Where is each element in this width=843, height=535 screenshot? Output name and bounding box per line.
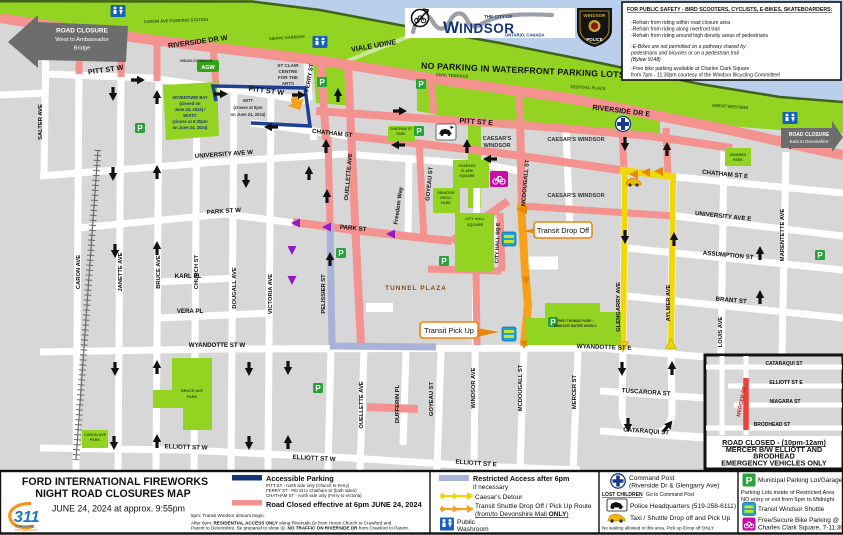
- svg-text:PELISSIER ST: PELISSIER ST: [321, 274, 327, 314]
- svg-text:NIGHT ROAD CLOSURES MAP: NIGHT ROAD CLOSURES MAP: [35, 488, 190, 500]
- svg-text:-Free bike parking available a: -Free bike parking available at Charles …: [631, 66, 750, 72]
- svg-text:PARK: PARK: [187, 395, 198, 399]
- svg-text:Accessible Parking: Accessible Parking: [266, 474, 334, 483]
- svg-text:Transit Windsor Shuttle: Transit Windsor Shuttle: [758, 506, 825, 513]
- svg-text:PARK: PARK: [733, 158, 743, 162]
- svg-text:GLENGARRY AVE: GLENGARRY AVE: [616, 282, 622, 332]
- svg-text:on June 24, 2024): on June 24, 2024): [173, 125, 209, 130]
- svg-text:Taxi / Shuttle Drop off and Pi: Taxi / Shuttle Drop off and Pick Up: [630, 515, 731, 522]
- svg-text:from 7pm - 11:30pm courtesy of: from 7pm - 11:30pm courtesy of the Winds…: [631, 73, 780, 79]
- svg-text:P: P: [137, 124, 143, 133]
- svg-text:-Refrain from riding within ro: -Refrain from riding within road closure…: [631, 20, 730, 26]
- svg-text:WINDSOR: WINDSOR: [583, 13, 606, 18]
- svg-text:CHATHAM ST - north side only (: CHATHAM ST - north side only (Ferry to V…: [266, 493, 362, 498]
- svg-text:KARL PL: KARL PL: [175, 273, 202, 280]
- svg-text:NIAGARA ST: NIAGARA ST: [770, 399, 801, 405]
- svg-text:Public: Public: [457, 519, 476, 526]
- svg-text:-Refrain from riding around hi: -Refrain from riding around high density…: [631, 33, 768, 39]
- svg-text:PARK: PARK: [90, 438, 101, 442]
- svg-text:THE CITY OF: THE CITY OF: [484, 14, 513, 19]
- svg-text:CHATHAM ST: CHATHAM ST: [390, 127, 413, 131]
- svg-text:P: P: [416, 127, 422, 136]
- svg-text:West to Ambassador: West to Ambassador: [55, 37, 108, 43]
- svg-text:Transit Drop Off: Transit Drop Off: [537, 226, 590, 235]
- svg-text:MCDOUGALL ST: MCDOUGALL ST: [518, 364, 524, 411]
- svg-text:JANETTE AVE: JANETTE AVE: [118, 252, 124, 291]
- svg-text:Municipal Parking Lot/Garage: Municipal Parking Lot/Garage: [758, 477, 843, 484]
- svg-text:DUFFERIN PL: DUFFERIN PL: [395, 384, 401, 423]
- svg-text:(closes at 5pm: (closes at 5pm: [233, 105, 262, 110]
- svg-text:CHURCH ST: CHURCH ST: [194, 254, 200, 289]
- svg-text:Road Closed effective at 6pm J: Road Closed effective at 6pm JUNE 24, 20…: [266, 500, 423, 509]
- svg-text:-Refrain from riding along riv: -Refrain from riding along riverfront tr…: [631, 27, 720, 33]
- svg-text:CHARLES: CHARLES: [458, 164, 476, 168]
- svg-text:SALTER AVE: SALTER AVE: [38, 104, 44, 140]
- svg-text:JUNE 24, 2024 at approx. 9:55p: JUNE 24, 2024 at approx. 9:55pm: [52, 504, 185, 514]
- svg-text:311: 311: [14, 509, 40, 526]
- svg-text:(from/to Devonshire Mall ONLY): (from/to Devonshire Mall ONLY): [475, 511, 569, 518]
- svg-text:East to Devonshire: East to Devonshire: [790, 139, 829, 144]
- svg-text:CITY SERVICES: CITY SERVICES: [15, 528, 37, 532]
- svg-text:FORD INTERNATIONAL FIREWORKS: FORD INTERNATIONAL FIREWORKS: [22, 476, 208, 488]
- svg-text:P: P: [338, 249, 344, 258]
- svg-text:CAESAR'S WINDSOR: CAESAR'S WINDSOR: [547, 137, 604, 143]
- svg-text:WINDSOR AVE: WINDSOR AVE: [471, 367, 477, 408]
- svg-text:(closes at 6:30pm: (closes at 6:30pm: [172, 119, 207, 124]
- svg-text:P: P: [319, 78, 325, 87]
- svg-text:Parking Lots inside of Restric: Parking Lots inside of Restricted Area: [741, 490, 835, 496]
- svg-text:EMERGENCY VEHICLES ONLY: EMERGENCY VEHICLES ONLY: [721, 459, 827, 468]
- svg-text:LOST CHILDREN: LOST CHILDREN: [602, 492, 643, 498]
- svg-text:CATARAQUI ST: CATARAQUI ST: [765, 361, 802, 367]
- svg-text:Police Headquarters (519-258-6: Police Headquarters (519-258-6111): [630, 503, 736, 510]
- svg-text:ROAD CLOSURE: ROAD CLOSURE: [789, 132, 830, 138]
- svg-text:ONTARIO, CANADA: ONTARIO, CANADA: [505, 33, 544, 38]
- svg-text:Go to Command Post: Go to Command Post: [646, 492, 695, 498]
- svg-text:Washroom: Washroom: [457, 526, 489, 533]
- svg-text:WITT: WITT: [243, 98, 254, 103]
- svg-text:5pm: Transit Windsor detours b: 5pm: Transit Windsor detours begin.: [191, 513, 265, 518]
- svg-text:ROAD CLOSURE: ROAD CLOSURE: [56, 28, 109, 35]
- svg-text:CROLL: CROLL: [440, 196, 453, 200]
- svg-text:CITY HALL: CITY HALL: [465, 217, 485, 221]
- svg-text:BRODHEAD ST: BRODHEAD ST: [754, 422, 791, 428]
- svg-text:ELLIOTT ST E: ELLIOTT ST E: [769, 380, 803, 386]
- svg-text:NO entry or exit from 6pm to M: NO entry or exit from 6pm to Midnight: [741, 497, 835, 503]
- svg-text:Transit Pick Up: Transit Pick Up: [424, 326, 474, 335]
- svg-text:DOUGALL AVE: DOUGALL AVE: [232, 267, 238, 309]
- svg-text:CENTRE: CENTRE: [279, 69, 298, 74]
- svg-text:Charles Clark Square, 7-11:30p: Charles Clark Square, 7-11:30pm: [758, 525, 843, 532]
- svg-text:AYLMER AVE: AYLMER AVE: [666, 284, 672, 321]
- svg-text:Restricted Access after 6pm: Restricted Access after 6pm: [473, 474, 569, 483]
- svg-text:ADVENTURE BAY: ADVENTURE BAY: [172, 95, 208, 100]
- svg-text:BRUCE AVE: BRUCE AVE: [156, 255, 162, 289]
- svg-text:WINDSOR: WINDSOR: [483, 143, 510, 149]
- svg-text:P: P: [418, 80, 424, 89]
- svg-text:Parent to Devonshire. Be prepa: Parent to Devonshire. Be prepared to sho…: [191, 526, 409, 531]
- svg-text:Bridge: Bridge: [74, 46, 91, 52]
- svg-text:(closed on: (closed on: [180, 101, 201, 106]
- svg-text:OUELLETTE AVE: OUELLETTE AVE: [359, 381, 365, 428]
- svg-text:CARON AVE: CARON AVE: [76, 255, 82, 289]
- svg-text:CARON AVE: CARON AVE: [84, 433, 107, 437]
- svg-text:FOR THE: FOR THE: [278, 75, 298, 80]
- svg-text:if necessary: if necessary: [473, 484, 509, 491]
- svg-text:PARK: PARK: [396, 132, 406, 136]
- svg-text:LOUIS AVE: LOUIS AVE: [718, 317, 724, 348]
- svg-text:No waiting allowed in this are: No waiting allowed in this area. Pick up…: [602, 526, 714, 531]
- svg-text:ST CLAIR: ST CLAIR: [277, 63, 299, 68]
- svg-text:W: W: [443, 18, 460, 37]
- svg-text:pedestrians and bicycles or on: pedestrians and bicycles or on a pedestr…: [630, 51, 740, 57]
- svg-text:WYANDOTTE ST W: WYANDOTTE ST W: [189, 342, 246, 349]
- svg-text:CLARK: CLARK: [461, 169, 474, 173]
- svg-text:P: P: [441, 257, 447, 266]
- svg-text:AGW: AGW: [201, 65, 215, 71]
- svg-text:WIATC: WIATC: [183, 113, 196, 118]
- svg-text:June 24, 2024) /: June 24, 2024) /: [175, 107, 207, 112]
- svg-text:KINSMEN: KINSMEN: [730, 153, 747, 157]
- svg-text:SQUARE: SQUARE: [467, 223, 484, 227]
- svg-text:on June 24, 2024): on June 24, 2024): [231, 112, 267, 117]
- svg-text:SENATOR: SENATOR: [437, 191, 455, 195]
- svg-text:MARENTETTE AVE: MARENTETTE AVE: [780, 209, 786, 262]
- svg-text:VISION CORRIDOR: VISION CORRIDOR: [180, 59, 213, 63]
- svg-text:Transit Shuttle Drop Off / Pic: Transit Shuttle Drop Off / Pick Up Route: [475, 503, 592, 510]
- svg-text:VERA PL: VERA PL: [177, 308, 204, 315]
- svg-text:P: P: [745, 475, 752, 487]
- svg-text:Caesar's Detour: Caesar's Detour: [475, 494, 523, 501]
- svg-text:TUNNEL PLAZA: TUNNEL PLAZA: [385, 285, 447, 292]
- svg-text:P: P: [817, 251, 823, 260]
- svg-text:CAESAR'S: CAESAR'S: [483, 136, 512, 142]
- svg-text:ARTS: ARTS: [282, 81, 295, 86]
- svg-text:GOYEAU ST: GOYEAU ST: [429, 381, 435, 416]
- svg-text:CAESAR'S WINDSOR: CAESAR'S WINDSOR: [547, 193, 604, 199]
- svg-text:(Riverside Dr & Glengarry Ave): (Riverside Dr & Glengarry Ave): [629, 483, 719, 490]
- svg-text:-E-Bikes are not permitted on: -E-Bikes are not permitted on a pathway …: [631, 44, 746, 50]
- svg-text:Free/Secure Bike Parking @: Free/Secure Bike Parking @: [758, 517, 839, 524]
- svg-text:VICTORIA AVE: VICTORIA AVE: [268, 274, 274, 314]
- svg-text:FOR PUBLIC SAFETY - BIRD SCOOT: FOR PUBLIC SAFETY - BIRD SCOOTERS, CYCLI…: [627, 7, 833, 13]
- svg-text:Command Post: Command Post: [629, 475, 675, 482]
- svg-text:MERCER ST: MERCER ST: [572, 374, 578, 409]
- svg-text:POLICE: POLICE: [586, 37, 602, 42]
- svg-text:P: P: [315, 384, 321, 393]
- svg-text:SQUARE: SQUARE: [459, 174, 475, 178]
- svg-text:WINDSOR WATER WORLD: WINDSOR WATER WORLD: [553, 324, 597, 328]
- svg-text:PARK: PARK: [441, 201, 451, 205]
- svg-text:BRUCE AVE: BRUCE AVE: [181, 389, 203, 393]
- svg-text:FRED THOMAS PARK /: FRED THOMAS PARK /: [556, 319, 593, 323]
- svg-text:(Bylaw 9148): (Bylaw 9148): [631, 57, 661, 63]
